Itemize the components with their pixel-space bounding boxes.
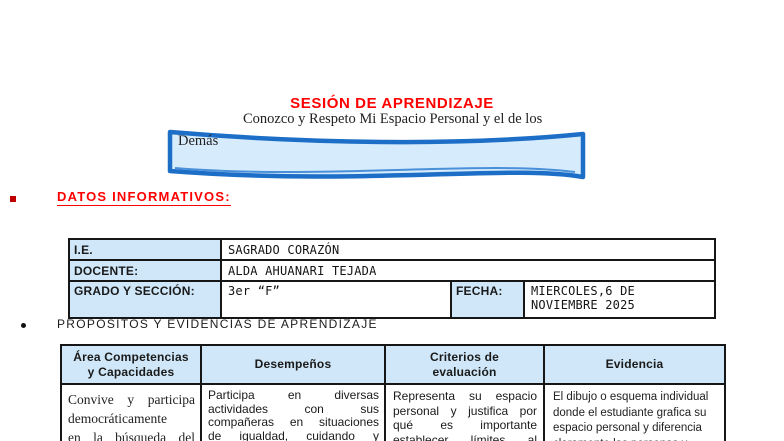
- table-row: DOCENTE: ALDA AHUANARI TEJADA: [69, 260, 715, 281]
- cell-evidencia: El dibujo o esquema individual donde el …: [544, 384, 725, 441]
- table-header-row: Área Competencias y Capacidades Desempeñ…: [61, 345, 725, 384]
- datos-informativos-heading: DATOS INFORMATIVOS:: [57, 189, 231, 206]
- column-header-desempenos: Desempeños: [201, 345, 385, 384]
- info-label-docente: DOCENTE:: [69, 260, 221, 281]
- column-header-area: Área Competencias y Capacidades: [61, 345, 201, 384]
- propositos-heading: PROPÓSITOS Y EVIDENCIAS DE APRENDIZAJE: [57, 317, 378, 331]
- info-label-fecha: FECHA:: [451, 281, 524, 318]
- info-label-ie: I.E.: [69, 239, 221, 260]
- bullet-dot-icon: [21, 323, 26, 328]
- column-header-criterios: Criterios de evaluación: [385, 345, 544, 384]
- wave-banner-shape: [163, 127, 587, 185]
- table-row: I.E. SAGRADO CORAZÓN: [69, 239, 715, 260]
- propositos-table: Área Competencias y Capacidades Desempeñ…: [60, 344, 726, 441]
- cell-desempenos: Participa en diversas actividades con su…: [201, 384, 385, 441]
- table-row: GRADO Y SECCIÓN: 3er “F” FECHA: MIERCOLE…: [69, 281, 715, 318]
- info-value-ie: SAGRADO CORAZÓN: [221, 239, 715, 260]
- info-value-fecha: MIERCOLES,6 DE NOVIEMBRE 2025: [524, 281, 715, 318]
- column-header-evidencia: Evidencia: [544, 345, 725, 384]
- wave-banner: [163, 127, 587, 185]
- bullet-square-icon: [10, 196, 16, 202]
- lesson-subtitle-line1: Conozco y Respeto Mi Espacio Personal y …: [243, 111, 542, 128]
- lesson-title: SESIÓN DE APRENDIZAJE: [0, 95, 784, 112]
- info-label-grado: GRADO Y SECCIÓN:: [69, 281, 221, 318]
- info-value-grado: 3er “F”: [221, 281, 451, 318]
- cell-area-competencias: Convive y participa democráticamente en …: [61, 384, 201, 441]
- lesson-subtitle-line2: Demás: [178, 133, 218, 150]
- info-value-docente: ALDA AHUANARI TEJADA: [221, 260, 715, 281]
- cell-criterios-evaluacion: Representa su espacio personal y justifi…: [385, 384, 544, 441]
- datos-informativos-table: I.E. SAGRADO CORAZÓN DOCENTE: ALDA AHUAN…: [68, 238, 716, 319]
- table-row: Convive y participa democráticamente en …: [61, 384, 725, 441]
